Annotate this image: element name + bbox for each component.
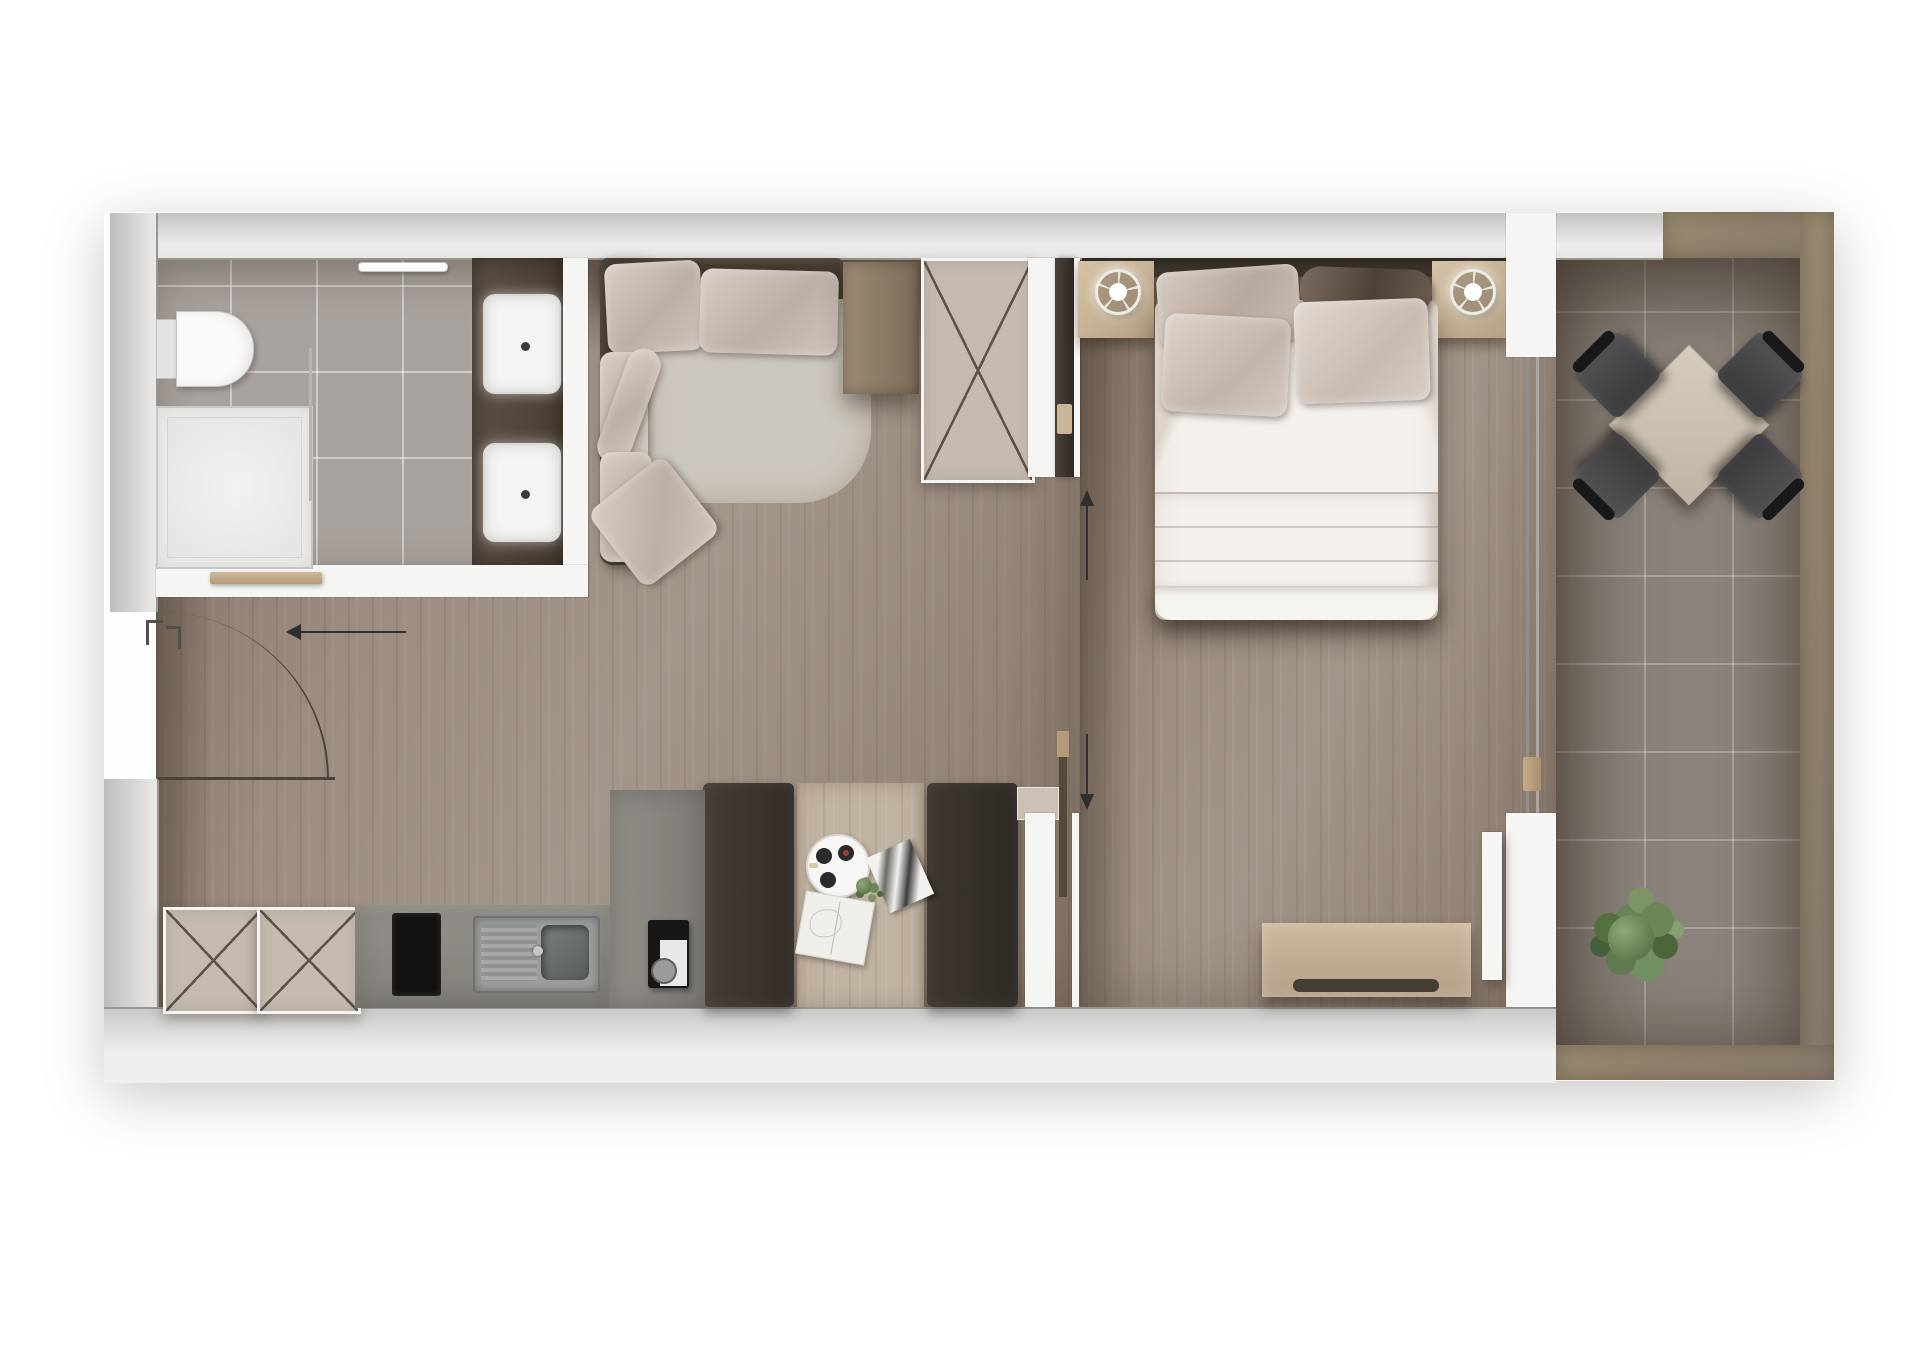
towel-rail [358,262,448,272]
track-handle [1057,731,1069,757]
cup [820,872,836,888]
dresser-handle-groove [1293,979,1439,992]
glass-door-line [1526,357,1529,814]
shower-glass-partition [309,348,312,501]
dresser [1262,923,1471,997]
balcony-rail-right [1800,212,1834,1080]
balcony-rail-bottom [1556,1045,1834,1080]
toilet-bowl [176,311,254,387]
bed-pillow-front-left [1161,313,1292,417]
door-handle [1057,404,1072,434]
entry-door-leaf [158,777,335,780]
table-lamp-left [1095,269,1141,315]
glass-door-handle [1523,757,1541,791]
arrow-head-down [1080,794,1094,810]
book-lines [809,909,842,938]
sink-basin-top [483,294,561,394]
shoe-cabinet-x [163,907,264,1014]
slide-arrow-down [1079,734,1095,810]
nightstand-right [1432,261,1509,338]
dining-bench-right [927,783,1018,1007]
sofa-pillow [604,260,705,355]
sofa-pillow [699,268,839,356]
hall-console-shelf [210,572,322,584]
balcony-wall-inner-strip [1482,832,1502,980]
small-plant [856,878,872,894]
sliding-door-panel [1055,258,1074,477]
side-table [843,262,919,394]
shoe-cabinet-x [257,907,361,1014]
coffee-machine [648,920,689,988]
faucet [533,946,543,956]
shower-tray [156,406,313,569]
open-book [795,890,875,965]
door-frame-mark-right [166,626,181,649]
cup [838,845,854,861]
outer-wall-top [110,213,1663,260]
cooktop [392,913,441,996]
potted-plant [1608,915,1654,961]
wardrobe-x [921,258,1035,483]
coffee-machine-knob [651,958,677,984]
spoon [809,863,818,868]
door-frame-mark-left [146,620,163,645]
partition-strip-bottom [1072,813,1079,1007]
bed-sheet-edge [1155,586,1438,620]
dining-bench-left [703,783,794,1007]
balcony-wall-bottom [1506,813,1556,1007]
table-lamp-right [1450,269,1496,315]
balcony-wall-top [1506,213,1556,357]
bathroom-east-wall [563,258,588,597]
outer-wall-bottom [104,1007,1556,1083]
kitchen-sink [473,916,600,993]
outer-wall-left-upper [110,213,158,612]
partition-wall-top [1028,258,1055,477]
sink-basin-bottom [483,443,561,542]
toilet [156,311,252,385]
shower-tray-inner [167,417,302,558]
drain-icon [521,342,530,351]
drain-icon [521,490,530,499]
slide-arrow-up [1079,490,1095,582]
bed-blanket [1155,492,1438,598]
partition-wall-bottom [1025,813,1055,1007]
nightstand-left [1078,261,1154,338]
floor-plan [0,0,1920,1357]
cup [816,848,832,864]
sink-bowl [541,925,589,980]
bed-pillow-front-right [1293,298,1430,405]
drainboard [481,924,537,981]
entry-direction-arrow [286,624,408,640]
cup-dot [843,850,849,856]
glass-door-line [1536,357,1539,814]
